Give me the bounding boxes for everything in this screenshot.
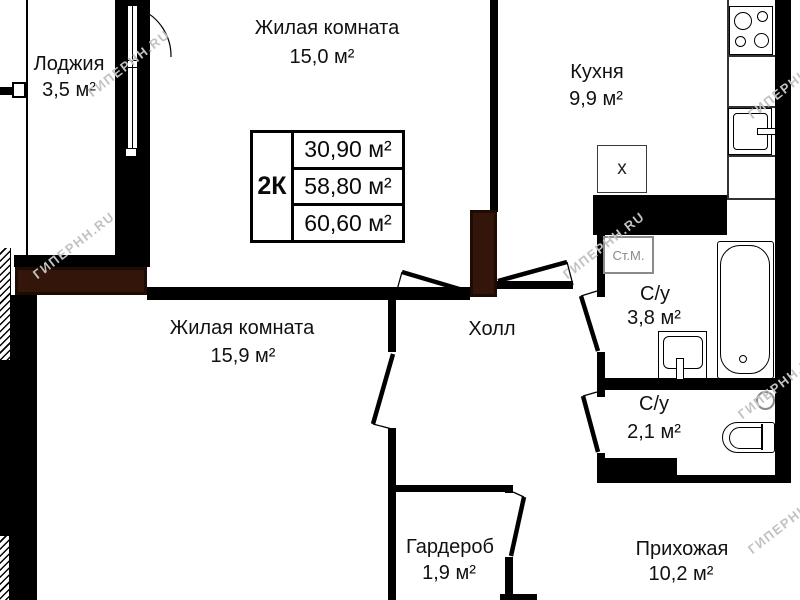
room-label-entry: Прихожая: [636, 538, 729, 560]
washbasin-icon: [658, 331, 707, 379]
insulation-hatch: [0, 248, 11, 360]
door-leaf: [373, 354, 393, 424]
watermark: ГИПЕРНН.RU: [745, 484, 800, 557]
door-arc: [513, 492, 524, 497]
room-label-living2: Жилая комната: [170, 317, 314, 339]
kitchen-box: х: [597, 145, 647, 193]
wall: [388, 428, 396, 600]
room-area-wardrobe: 1,9 м²: [422, 562, 476, 584]
living-area-value: 30,90 м²: [294, 133, 402, 167]
counter-edge: [727, 155, 775, 157]
toilet-icon: [722, 422, 775, 453]
wall: [147, 287, 470, 300]
room-label-kitchen: Кухня: [570, 61, 624, 83]
wall: [497, 281, 573, 289]
window: [127, 5, 138, 151]
door-jamb: [505, 485, 513, 493]
watermark: ГИПЕРНН.RU: [745, 49, 800, 122]
room-label-bathroom: С/у: [640, 283, 670, 305]
room-label-living1: Жилая комната: [255, 17, 399, 39]
wall: [396, 485, 505, 492]
floor-plan: х Ст.М.: [0, 0, 800, 600]
reduced-total-area-value: 58,80 м²: [294, 167, 402, 204]
washing-machine-label: Ст.М.: [613, 248, 645, 263]
area-summary-table: 2К 30,90 м² 58,80 м² 60,60 м²: [250, 130, 405, 243]
door-leaf: [511, 497, 524, 556]
counter-edge: [727, 198, 775, 200]
wall: [597, 378, 783, 390]
stove-icon: [729, 6, 773, 55]
door-leaf: [498, 262, 567, 281]
wall: [500, 594, 537, 600]
bathtub-icon: [717, 241, 774, 379]
window-sill: [125, 148, 137, 157]
door-leaf: [583, 396, 598, 452]
room-area-toilet: 2,1 м²: [627, 421, 681, 443]
room-label-loggia: Лоджия: [34, 53, 105, 75]
room-area-living2: 15,9 м²: [211, 345, 276, 367]
room-label-hall: Холл: [468, 318, 515, 340]
total-area-value: 60,60 м²: [294, 203, 402, 240]
apartment-type: 2К: [253, 133, 294, 240]
door-arc: [581, 291, 597, 296]
wall: [597, 458, 677, 483]
wall: [677, 475, 783, 483]
wall: [490, 0, 498, 212]
radiator-icon: [12, 82, 26, 98]
insulation-hatch: [0, 536, 10, 600]
loggia-glazing: [26, 0, 28, 258]
room-area-entry: 10,2 м²: [649, 563, 714, 585]
door-leaf: [581, 296, 598, 351]
room-area-bathroom: 3,8 м²: [627, 307, 681, 329]
door-arc: [583, 392, 597, 396]
room-area-kitchen: 9,9 м²: [569, 88, 623, 110]
room-area-living1: 15,0 м²: [290, 46, 355, 68]
kitchen-box-label: х: [617, 158, 627, 180]
counter-edge: [727, 55, 775, 57]
room-label-wardrobe: Гардероб: [406, 536, 494, 558]
wall: [597, 352, 605, 397]
room-label-toilet: С/у: [639, 393, 669, 415]
vent-shaft: [470, 210, 497, 297]
wall: [388, 300, 396, 352]
wall: [775, 0, 791, 483]
